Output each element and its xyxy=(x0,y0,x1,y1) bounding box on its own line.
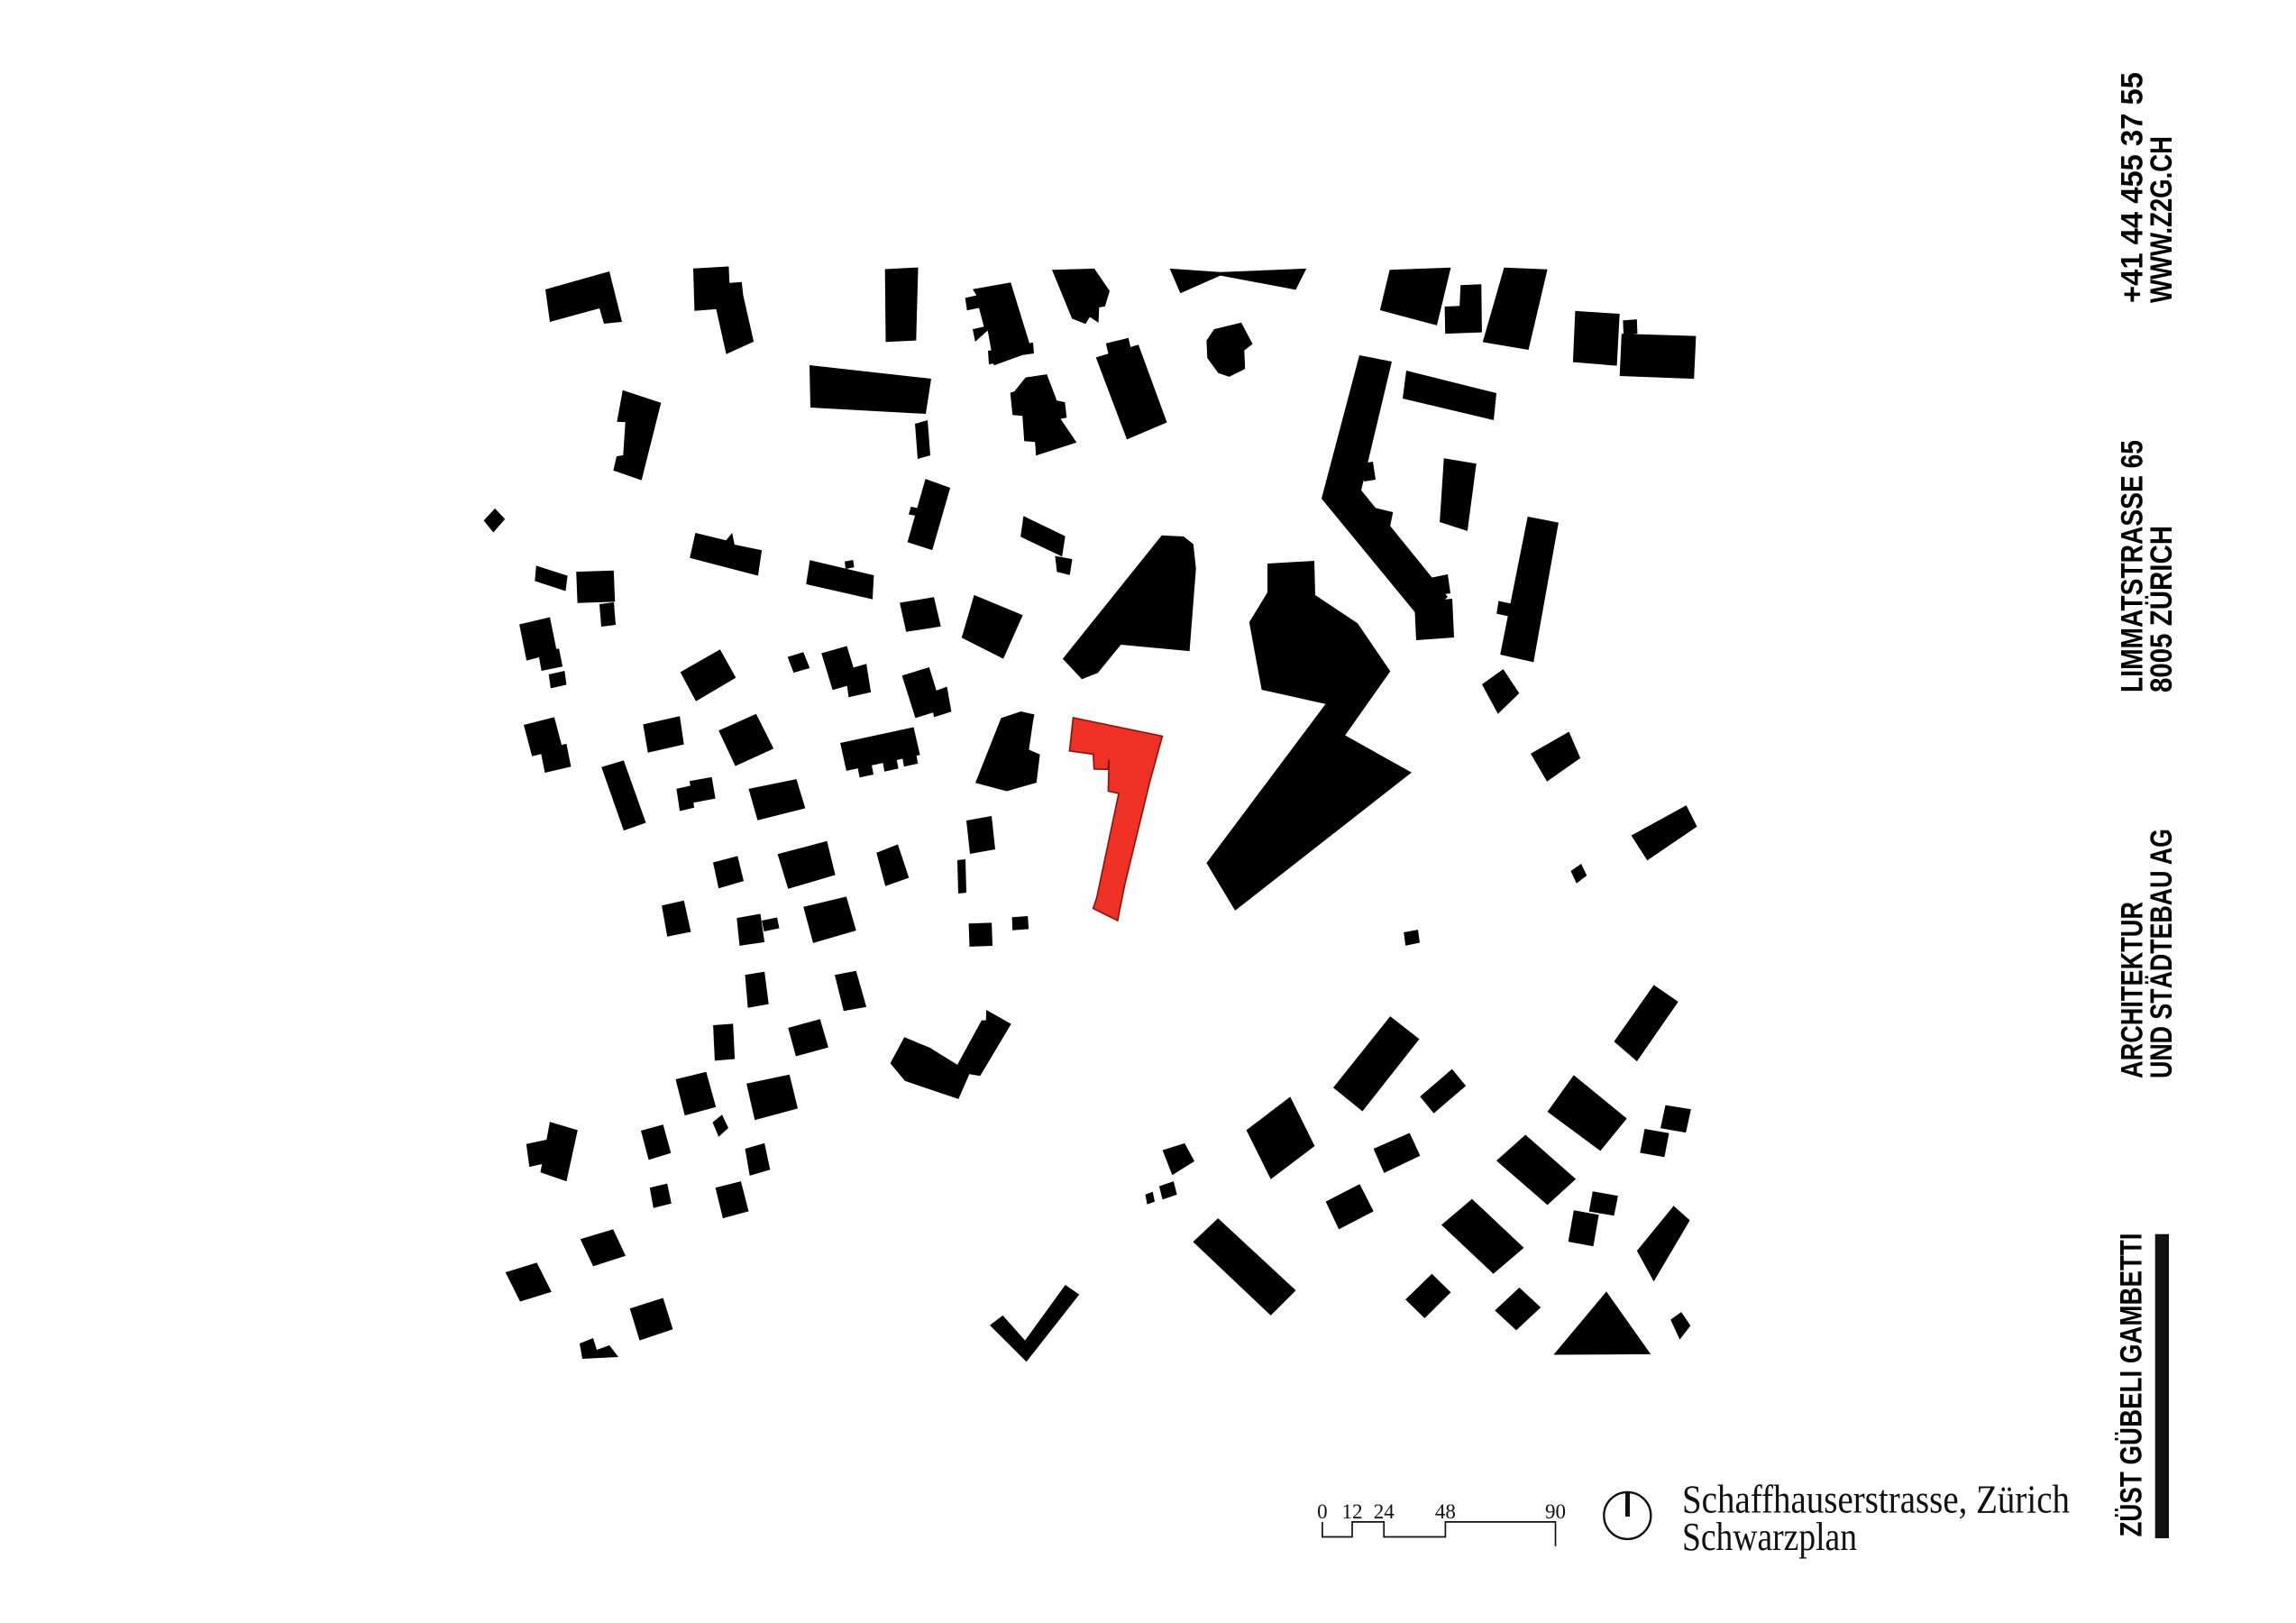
svg-text:90: 90 xyxy=(1545,1500,1566,1523)
svg-text:24: 24 xyxy=(1374,1500,1395,1523)
svg-text:UND STÄDTEBAU AG: UND STÄDTEBAU AG xyxy=(2145,829,2179,1078)
svg-text:48: 48 xyxy=(1435,1500,1456,1523)
svg-text:12: 12 xyxy=(1342,1500,1363,1523)
svg-text:ZÜST GÜBELI GAMBETTI: ZÜST GÜBELI GAMBETTI xyxy=(2115,1233,2149,1537)
svg-text:8005 ZÜRICH: 8005 ZÜRICH xyxy=(2145,526,2179,692)
svg-text:0: 0 xyxy=(1317,1500,1328,1523)
svg-text:Schwarzplan: Schwarzplan xyxy=(1682,1515,1857,1559)
svg-text:WWW.Z2G.CH: WWW.Z2G.CH xyxy=(2145,136,2179,303)
